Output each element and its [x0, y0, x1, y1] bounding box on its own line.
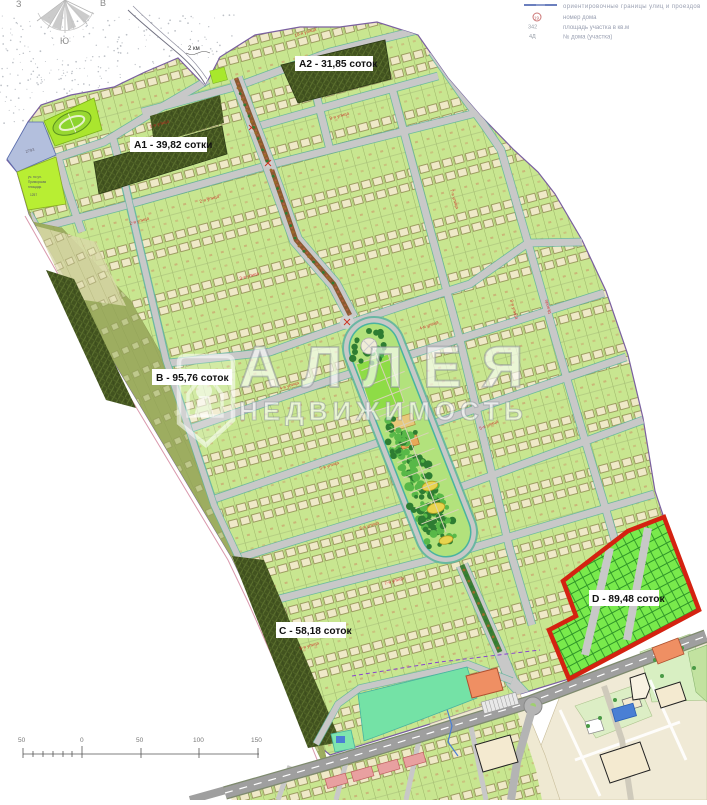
svg-text:D - 89,48 соток: D - 89,48 соток: [592, 594, 665, 605]
svg-text:4Д: 4Д: [529, 34, 536, 40]
svg-text:0: 0: [80, 737, 84, 744]
svg-text:50: 50: [18, 737, 26, 744]
svg-text:19: 19: [534, 16, 540, 21]
svg-text:Приморская: Приморская: [28, 180, 46, 184]
svg-text:A2 - 31,85 соток: A2 - 31,85 соток: [299, 59, 378, 70]
svg-text:номер дома: номер дома: [563, 15, 597, 21]
svg-text:150: 150: [251, 737, 262, 744]
svg-text:ориентировочные границы улиц и: ориентировочные границы улиц и проездов: [563, 4, 701, 10]
svg-text:A1 - 39,82 сотки: A1 - 39,82 сотки: [134, 140, 212, 151]
svg-text:1257: 1257: [30, 193, 37, 197]
svg-text:площадь: площадь: [28, 185, 42, 189]
svg-text:З: З: [16, 0, 21, 9]
svg-text:342: 342: [528, 25, 537, 31]
svg-text:АЛЛЕЯ: АЛЛЕЯ: [239, 335, 543, 400]
svg-text:Ю: Ю: [60, 36, 69, 46]
svg-text:C - 58,18 соток: C - 58,18 соток: [279, 626, 352, 637]
svg-text:2 км: 2 км: [188, 46, 200, 52]
svg-text:В: В: [100, 0, 106, 8]
svg-text:площадь участка в кв.м: площадь участка в кв.м: [563, 25, 629, 31]
svg-text:НЕДВИЖИМОСТЬ: НЕДВИЖИМОСТЬ: [239, 396, 528, 426]
svg-text:№ дома (участка): № дома (участка): [563, 34, 612, 41]
svg-text:50: 50: [136, 737, 144, 744]
svg-text:B - 95,76 соток: B - 95,76 соток: [156, 373, 229, 384]
svg-text:100: 100: [193, 737, 204, 744]
svg-text:уч. по ул.: уч. по ул.: [28, 175, 42, 179]
